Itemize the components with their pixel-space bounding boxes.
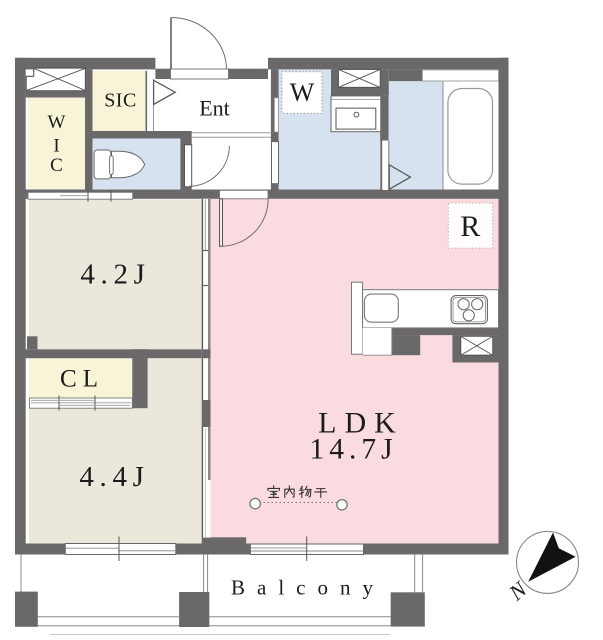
svg-text:SIC: SIC [104,90,137,112]
svg-text:Balcony: Balcony [231,576,385,600]
svg-text:C: C [50,155,63,176]
svg-text:I: I [53,135,59,156]
svg-text:R: R [460,210,480,243]
svg-text:W: W [290,78,315,107]
svg-text:4.2J: 4.2J [80,259,150,291]
svg-text:W: W [48,112,66,133]
svg-text:Ent: Ent [199,95,230,120]
svg-text:14.7J: 14.7J [309,434,397,466]
svg-text:CL: CL [60,366,104,393]
svg-text:4.4J: 4.4J [79,461,149,493]
